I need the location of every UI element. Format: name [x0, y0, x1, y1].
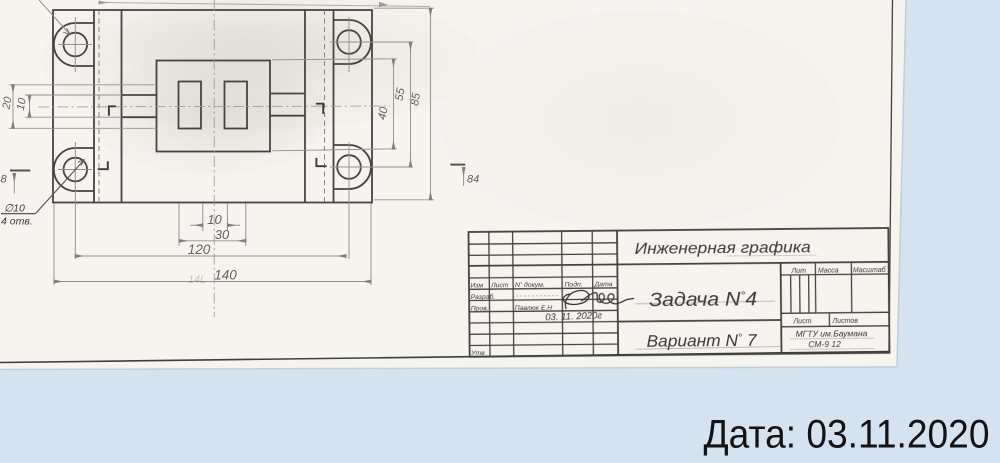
svg-text:Павлюк Е.Н: Павлюк Е.Н — [515, 304, 553, 311]
svg-text:10: 10 — [207, 212, 222, 227]
svg-text:14L: 14L — [188, 274, 206, 286]
svg-text:Масштаб: Масштаб — [853, 266, 887, 274]
svg-text:Подп.: Подп. — [564, 280, 582, 288]
svg-text:8: 8 — [1, 174, 8, 186]
svg-text:N˚ докум.: N˚ докум. — [515, 281, 545, 289]
svg-text:∅10: ∅10 — [4, 203, 25, 215]
svg-text:140: 140 — [214, 268, 237, 283]
svg-text:Листов: Листов — [831, 318, 858, 325]
svg-text:Масса: Масса — [818, 267, 839, 274]
svg-text:МГТУ им.Баумана: МГТУ им.Баумана — [796, 328, 868, 339]
svg-text:84: 84 — [467, 174, 479, 186]
svg-text:Разраб.: Разраб. — [471, 293, 496, 301]
svg-text:Дата: Дата — [593, 281, 612, 288]
svg-text:Дата: 03.11.2020: Дата: 03.11.2020 — [704, 413, 990, 457]
svg-text:Изм: Изм — [470, 282, 483, 289]
svg-text:30: 30 — [215, 227, 230, 242]
svg-text:Лист: Лист — [792, 318, 811, 325]
svg-text:Лист: Лист — [490, 282, 509, 289]
svg-text:СМ-9 12: СМ-9 12 — [808, 339, 841, 349]
svg-text:120: 120 — [188, 242, 211, 257]
svg-text:Пров.: Пров. — [471, 305, 489, 312]
svg-text:4 отв.: 4 отв. — [1, 216, 33, 228]
svg-text:03. 11. 2020г: 03. 11. 2020г — [545, 310, 602, 323]
svg-text:Лит: Лит — [790, 268, 806, 275]
svg-text:Утв: Утв — [470, 350, 485, 357]
